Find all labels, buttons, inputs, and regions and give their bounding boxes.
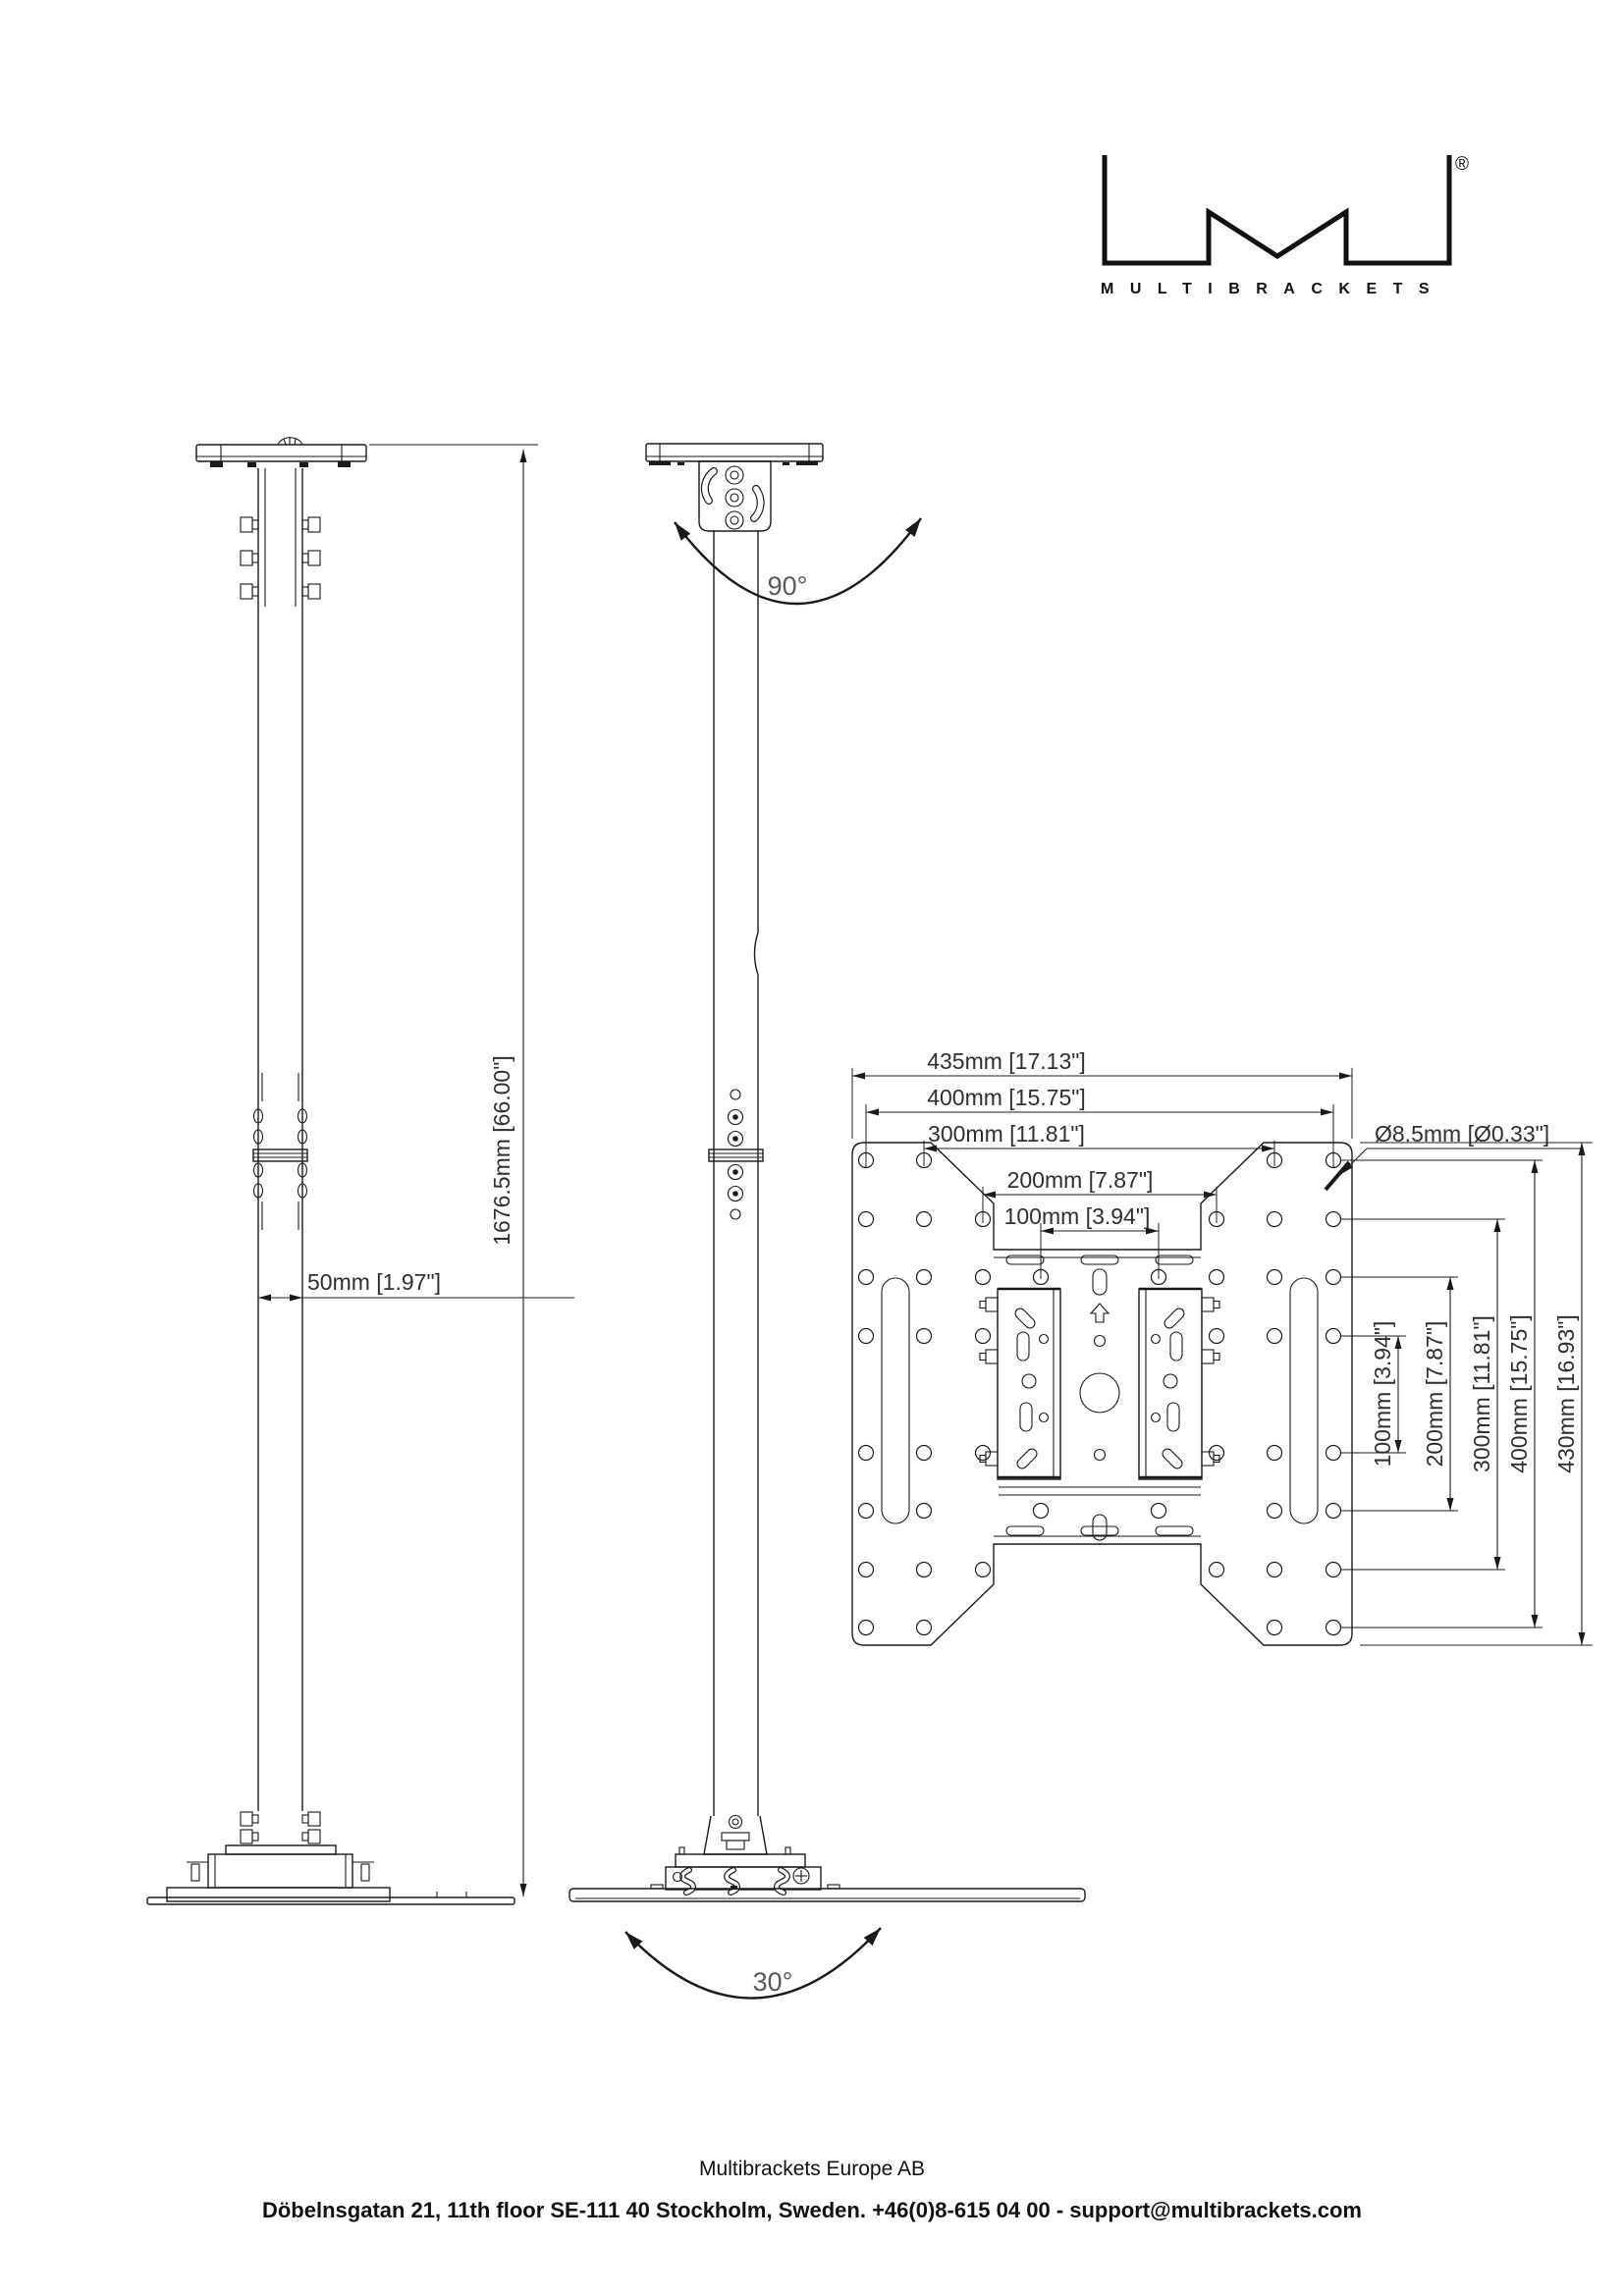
projector-plate-side [569,1889,1085,1901]
front-view-dimensions: 1676.5mm [66.00"] 50mm [1.97"] [258,445,574,1896]
ceiling-plate [196,445,366,461]
swivel-angle-label: 30° [753,1967,793,1997]
tilt-angle-label: 90° [768,571,808,601]
hole-diameter-callout: Ø8.5mm [Ø0.33"] [1326,1121,1582,1190]
dim-400: 400mm [15.75"] [927,1085,1086,1110]
swivel-angle-annotation: 30° [625,1928,881,1999]
dim-300: 300mm [11.81"] [928,1121,1085,1147]
vdim-300: 300mm [11.81"] [1469,1315,1494,1472]
top-bolts [241,517,320,599]
multibrackets-logo: ® MULTIBRACKETS [1101,154,1469,297]
base-assembly [147,1812,514,1904]
vdim-430: 430mm [16.93"] [1553,1314,1579,1473]
plate-horizontal-dimensions: 435mm [17.13"] 400mm [15.75"] 300mm [11.… [852,1048,1352,1279]
plate-vertical-dimensions: 100mm [3.94"] 200mm [7.87"] 300mm [11.81… [1341,1143,1593,1645]
right-rail [1139,1289,1219,1479]
up-arrow-icon [1091,1304,1109,1322]
left-slot [882,1278,909,1523]
company-contact: Döbelnsgatan 21, 11th floor SE-111 40 St… [262,2198,1362,2222]
plate-view: 435mm [17.13"] 400mm [15.75"] 300mm [11.… [852,1048,1593,1645]
pole-coupling [253,1073,307,1230]
vdim-400: 400mm [15.75"] [1506,1314,1532,1473]
swivel-assembly [569,1816,1085,1902]
ceiling-plate-side [646,444,823,461]
pole-coupling-side [709,1090,763,1219]
vdim-100: 100mm [3.94"] [1370,1321,1395,1468]
vdim-200: 200mm [7.87"] [1422,1321,1447,1468]
right-slot [1290,1278,1318,1523]
tilt-bracket [699,461,771,531]
pole-width-dimension-label: 50mm [1.97"] [307,1269,441,1295]
dim-100: 100mm [3.94"] [1004,1203,1151,1229]
logo-m-glyph [1105,155,1449,263]
technical-drawing: ® MULTIBRACKETS [0,0,1624,2296]
center-hole [1080,1373,1119,1413]
brand-wordmark: MULTIBRACKETS [1101,281,1445,297]
front-view: 1676.5mm [66.00"] 50mm [1.97"] [147,437,574,1904]
dim-435: 435mm [17.13"] [927,1048,1086,1074]
height-dimension-label: 1676.5mm [66.00"] [489,1055,514,1246]
dim-200: 200mm [7.87"] [1007,1167,1154,1193]
center-features [999,1255,1201,1540]
footer: Multibrackets Europe AB Döbelnsgatan 21,… [262,2158,1362,2222]
registered-trademark-icon: ® [1455,154,1469,175]
company-name: Multibrackets Europe AB [699,2158,925,2180]
left-rail [980,1289,1060,1479]
drawing-page: ® MULTIBRACKETS [0,0,1624,2296]
